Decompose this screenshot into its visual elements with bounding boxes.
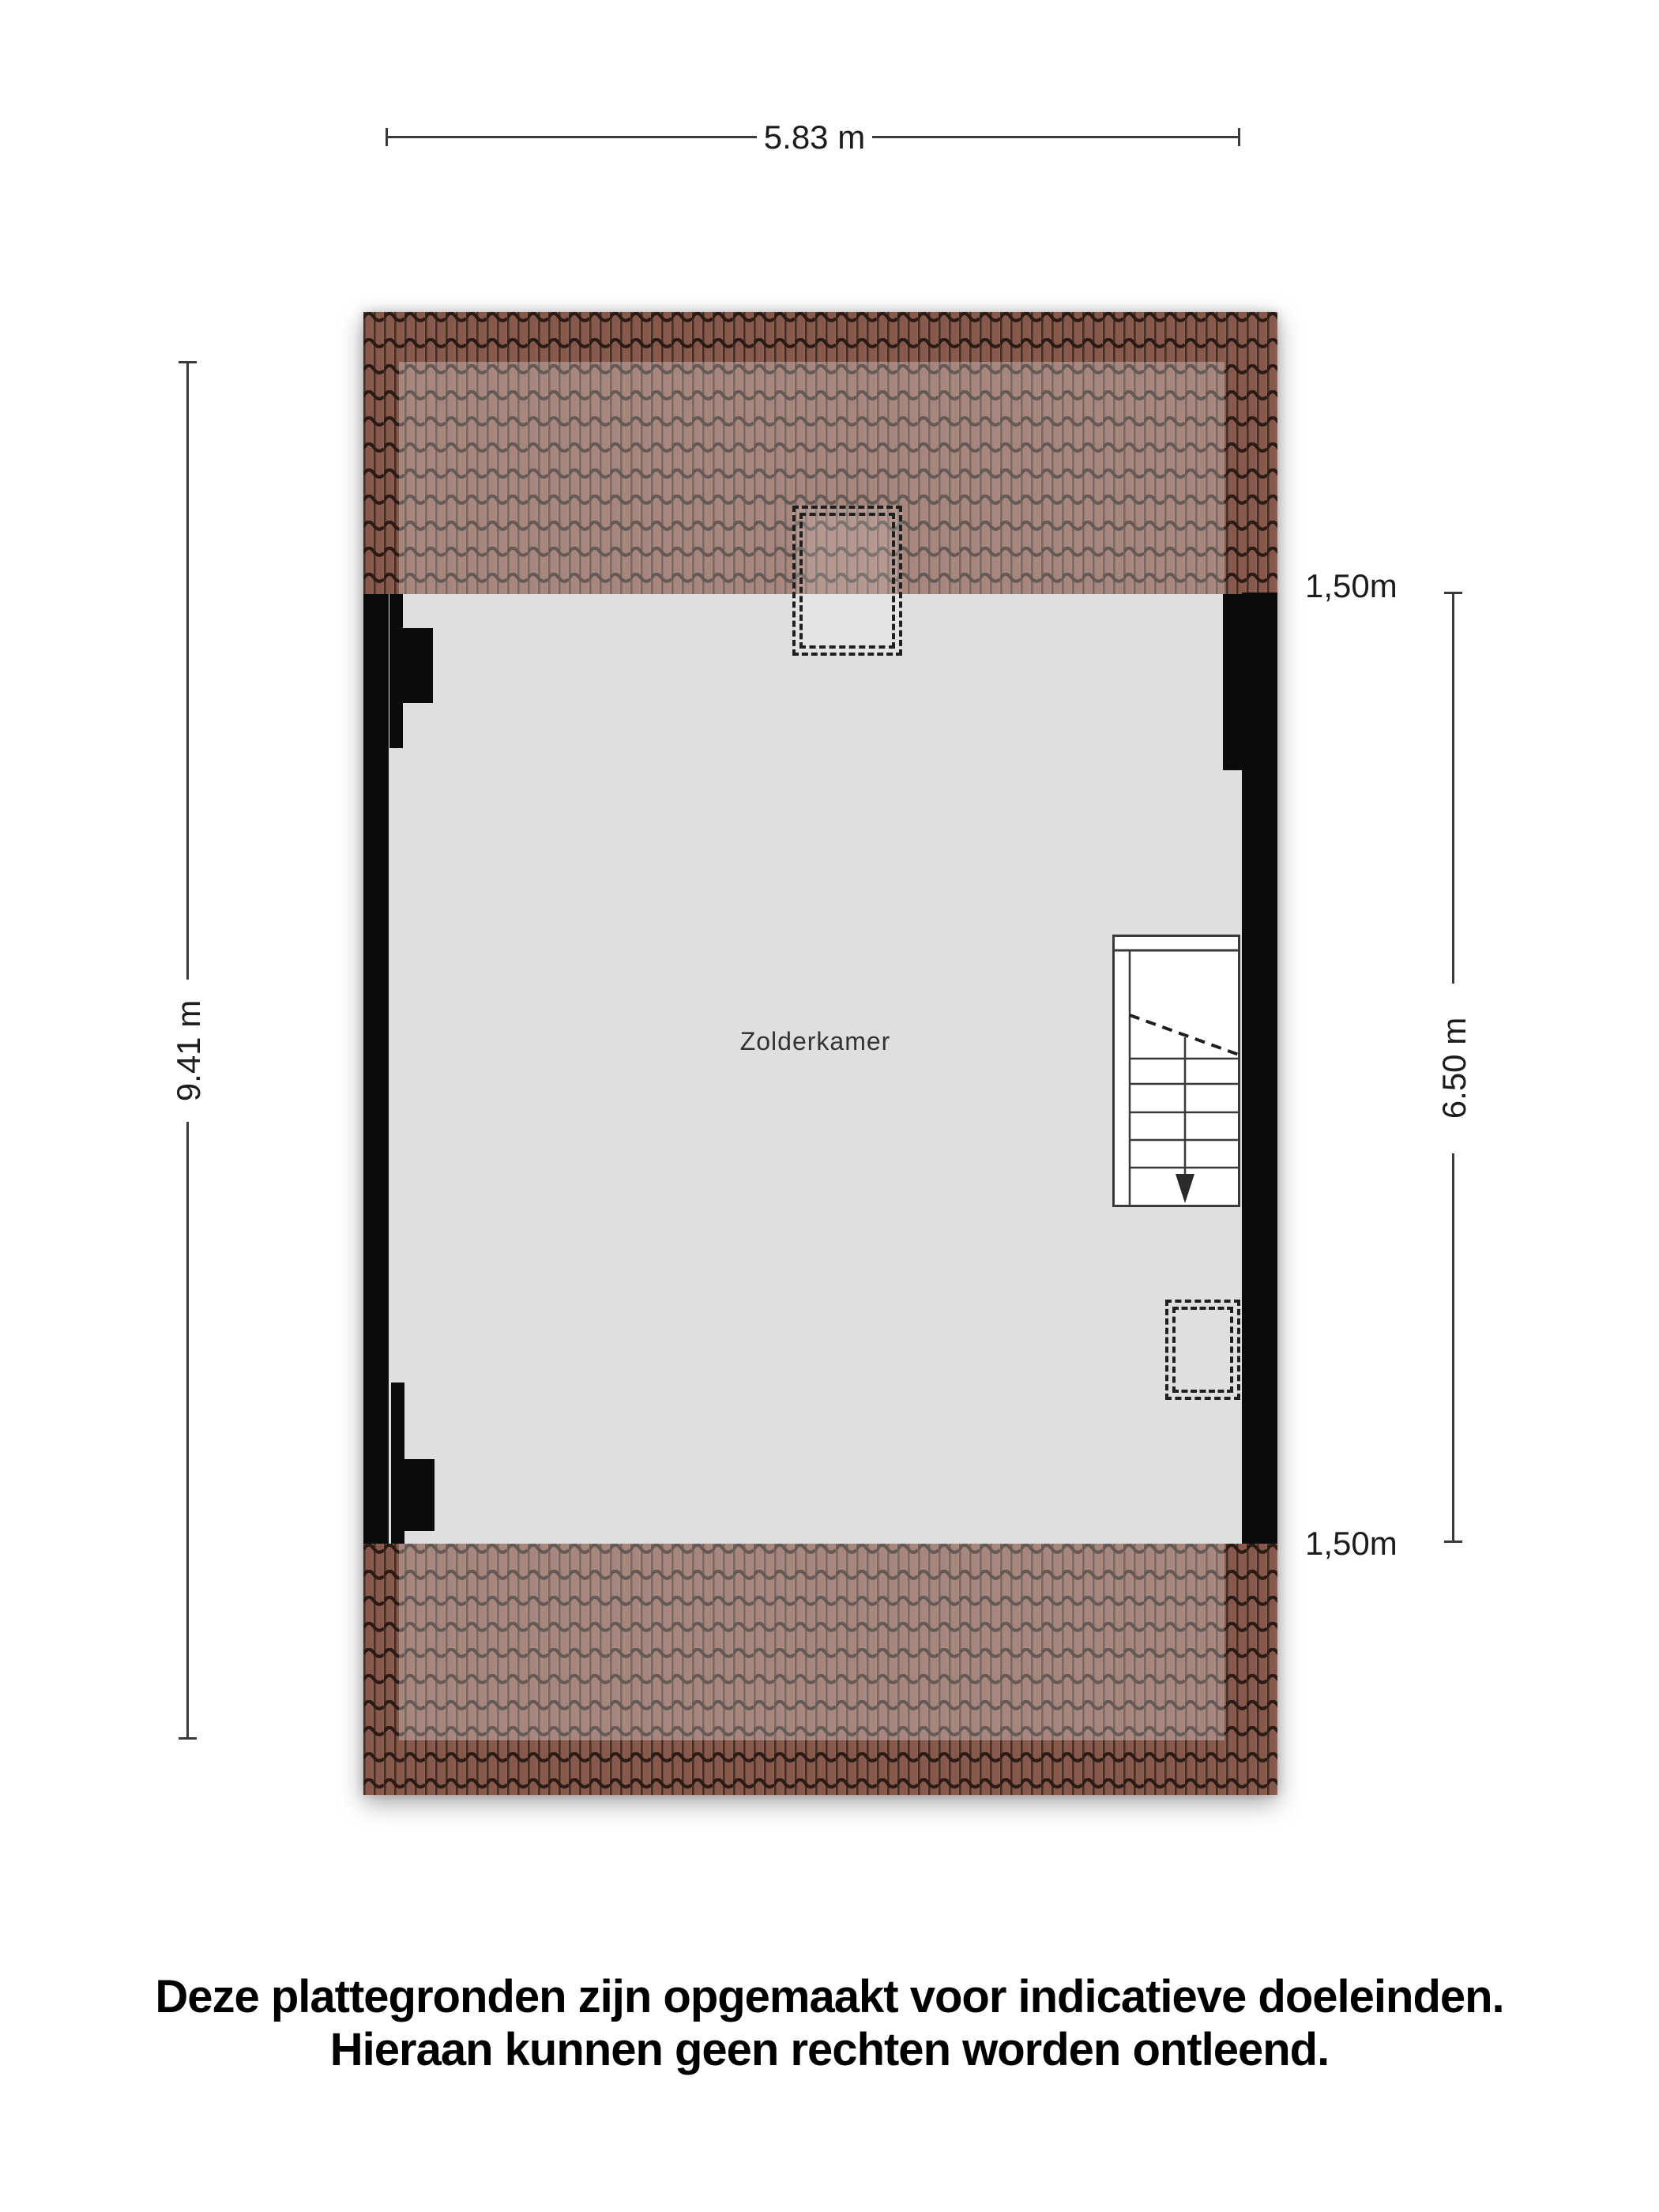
dimension-top-cap-left (386, 128, 388, 146)
chimney-bottom-left (404, 1459, 434, 1531)
staircase (1112, 935, 1240, 1207)
disclaimer-line1: Deze plattegronden zijn opgemaakt voor i… (0, 1970, 1659, 2023)
dimension-top-line-left (387, 136, 757, 138)
hatch-dashed-outline (1165, 1300, 1240, 1400)
wall-stub-bottom-left (391, 1382, 404, 1544)
wall-right (1242, 592, 1277, 1544)
dimension-top-label: 5.83 m (735, 118, 893, 156)
skylight-dashed-outline (792, 506, 902, 656)
roof-bottom (363, 1544, 1277, 1795)
dimension-left-label: 9.41 m (170, 964, 205, 1138)
dimension-top-line-right (872, 136, 1240, 138)
disclaimer: Deze plattegronden zijn opgemaakt voor i… (0, 1970, 1659, 2076)
skylight-dashed-outline-inner (799, 513, 895, 649)
wall-left (363, 594, 389, 1544)
hatch-dashed-outline-inner (1172, 1307, 1233, 1393)
wall-stub-top-left (389, 594, 403, 748)
dimension-right-line-bottom (1452, 1153, 1454, 1543)
dimension-right-line-top (1452, 592, 1454, 984)
floorplan: Zolderkamer (363, 312, 1277, 1795)
room-label: Zolderkamer (697, 1027, 934, 1056)
chimney-top-left (403, 628, 433, 703)
dimension-left-cap-top (179, 361, 197, 363)
disclaimer-line2: Hieraan kunnen geen rechten worden ontle… (0, 2023, 1659, 2076)
dimension-left-cap-bottom (179, 1737, 197, 1740)
dimension-left-line-top (186, 362, 189, 980)
dimension-right-cap-bottom (1444, 1540, 1462, 1543)
knee-wall-label-bottom: 1,50m (1305, 1525, 1398, 1563)
knee-wall-label-top: 1,50m (1305, 567, 1398, 605)
wall-stub-top-right (1223, 594, 1242, 770)
floorplan-page: 5.83 m 9.41 m 6.50 m 1,50m 1,50m (0, 0, 1659, 2212)
dimension-left-line-bottom (186, 1122, 189, 1740)
dimension-right-cap-top (1444, 592, 1462, 594)
dimension-top-cap-right (1238, 128, 1240, 146)
dimension-right-label: 6.50 m (1435, 981, 1470, 1155)
